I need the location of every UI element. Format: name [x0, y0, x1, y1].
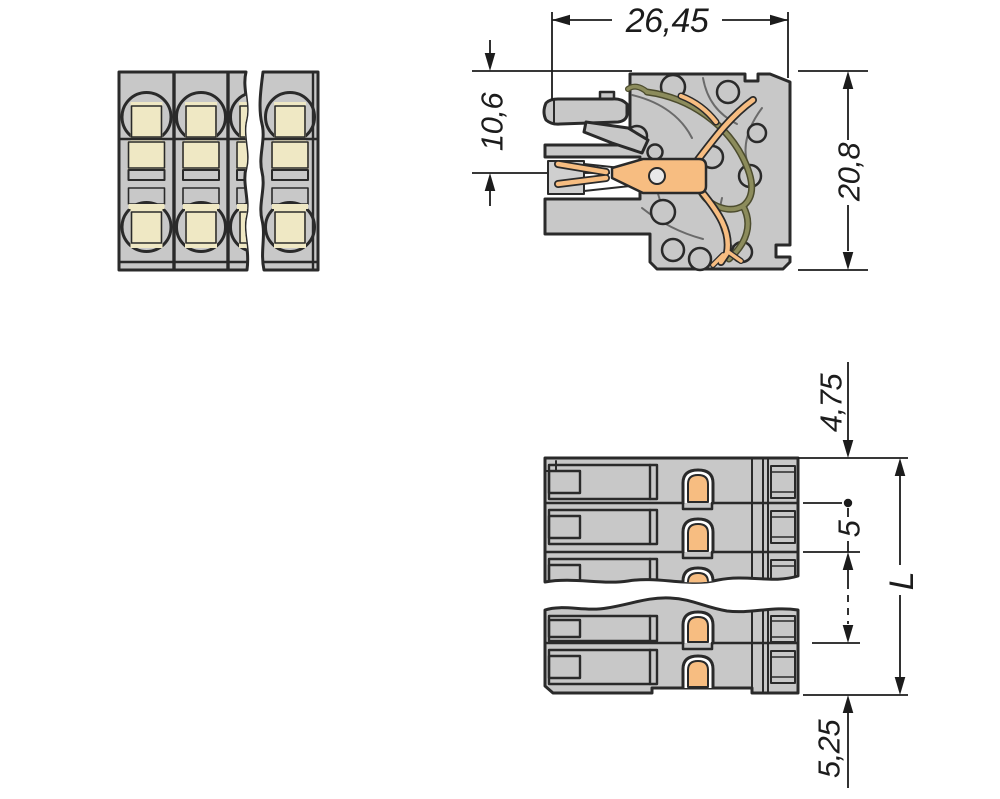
dim-label-clamp-height: 10,6	[475, 92, 510, 152]
dim-label-total-height: 20,8	[832, 142, 867, 203]
dim-label-pitch: 5	[832, 519, 867, 537]
dimension-arrow	[485, 53, 496, 71]
dimension-arrow	[843, 252, 854, 270]
dimension-dot	[844, 499, 852, 507]
dimension-5-25: 5,25	[812, 695, 854, 788]
drawing-svg: 26,45 10,6 20,8	[0, 0, 1000, 799]
dim-label-length: L	[883, 572, 921, 590]
dimension-4-75: 4,75	[798, 362, 908, 458]
dimension-arrow	[843, 71, 854, 89]
dimension-20-8: 20,8	[798, 71, 868, 270]
dim-label-bottom-offset: 5,25	[812, 719, 847, 779]
dimension-5-pitch: 5	[803, 499, 867, 643]
dimension-arrow	[895, 458, 906, 476]
dimension-arrow	[843, 695, 854, 713]
dimension-arrow	[485, 173, 496, 191]
cross-section-view: 26,45 10,6 20,8	[472, 2, 868, 270]
pole-opening	[683, 470, 713, 601]
top-view-lower-block	[545, 598, 798, 693]
technical-drawing-canvas: 26,45 10,6 20,8	[0, 0, 1000, 799]
front-left-piece-details	[119, 72, 280, 270]
dimension-arrow	[770, 15, 788, 26]
front-view	[119, 72, 318, 270]
top-view-upper-block	[545, 458, 798, 582]
dimension-arrow	[843, 625, 854, 643]
dimension-arrow	[843, 552, 854, 570]
top-view: 4,75 5 L 5,25	[545, 362, 921, 788]
dim-label-width: 26,45	[625, 2, 709, 40]
dimension-arrow	[843, 440, 854, 458]
dim-label-top-offset: 4,75	[814, 373, 849, 433]
dimension-arrow	[895, 677, 906, 695]
dimension-L: L	[803, 458, 921, 695]
dimension-arrow	[552, 15, 570, 26]
